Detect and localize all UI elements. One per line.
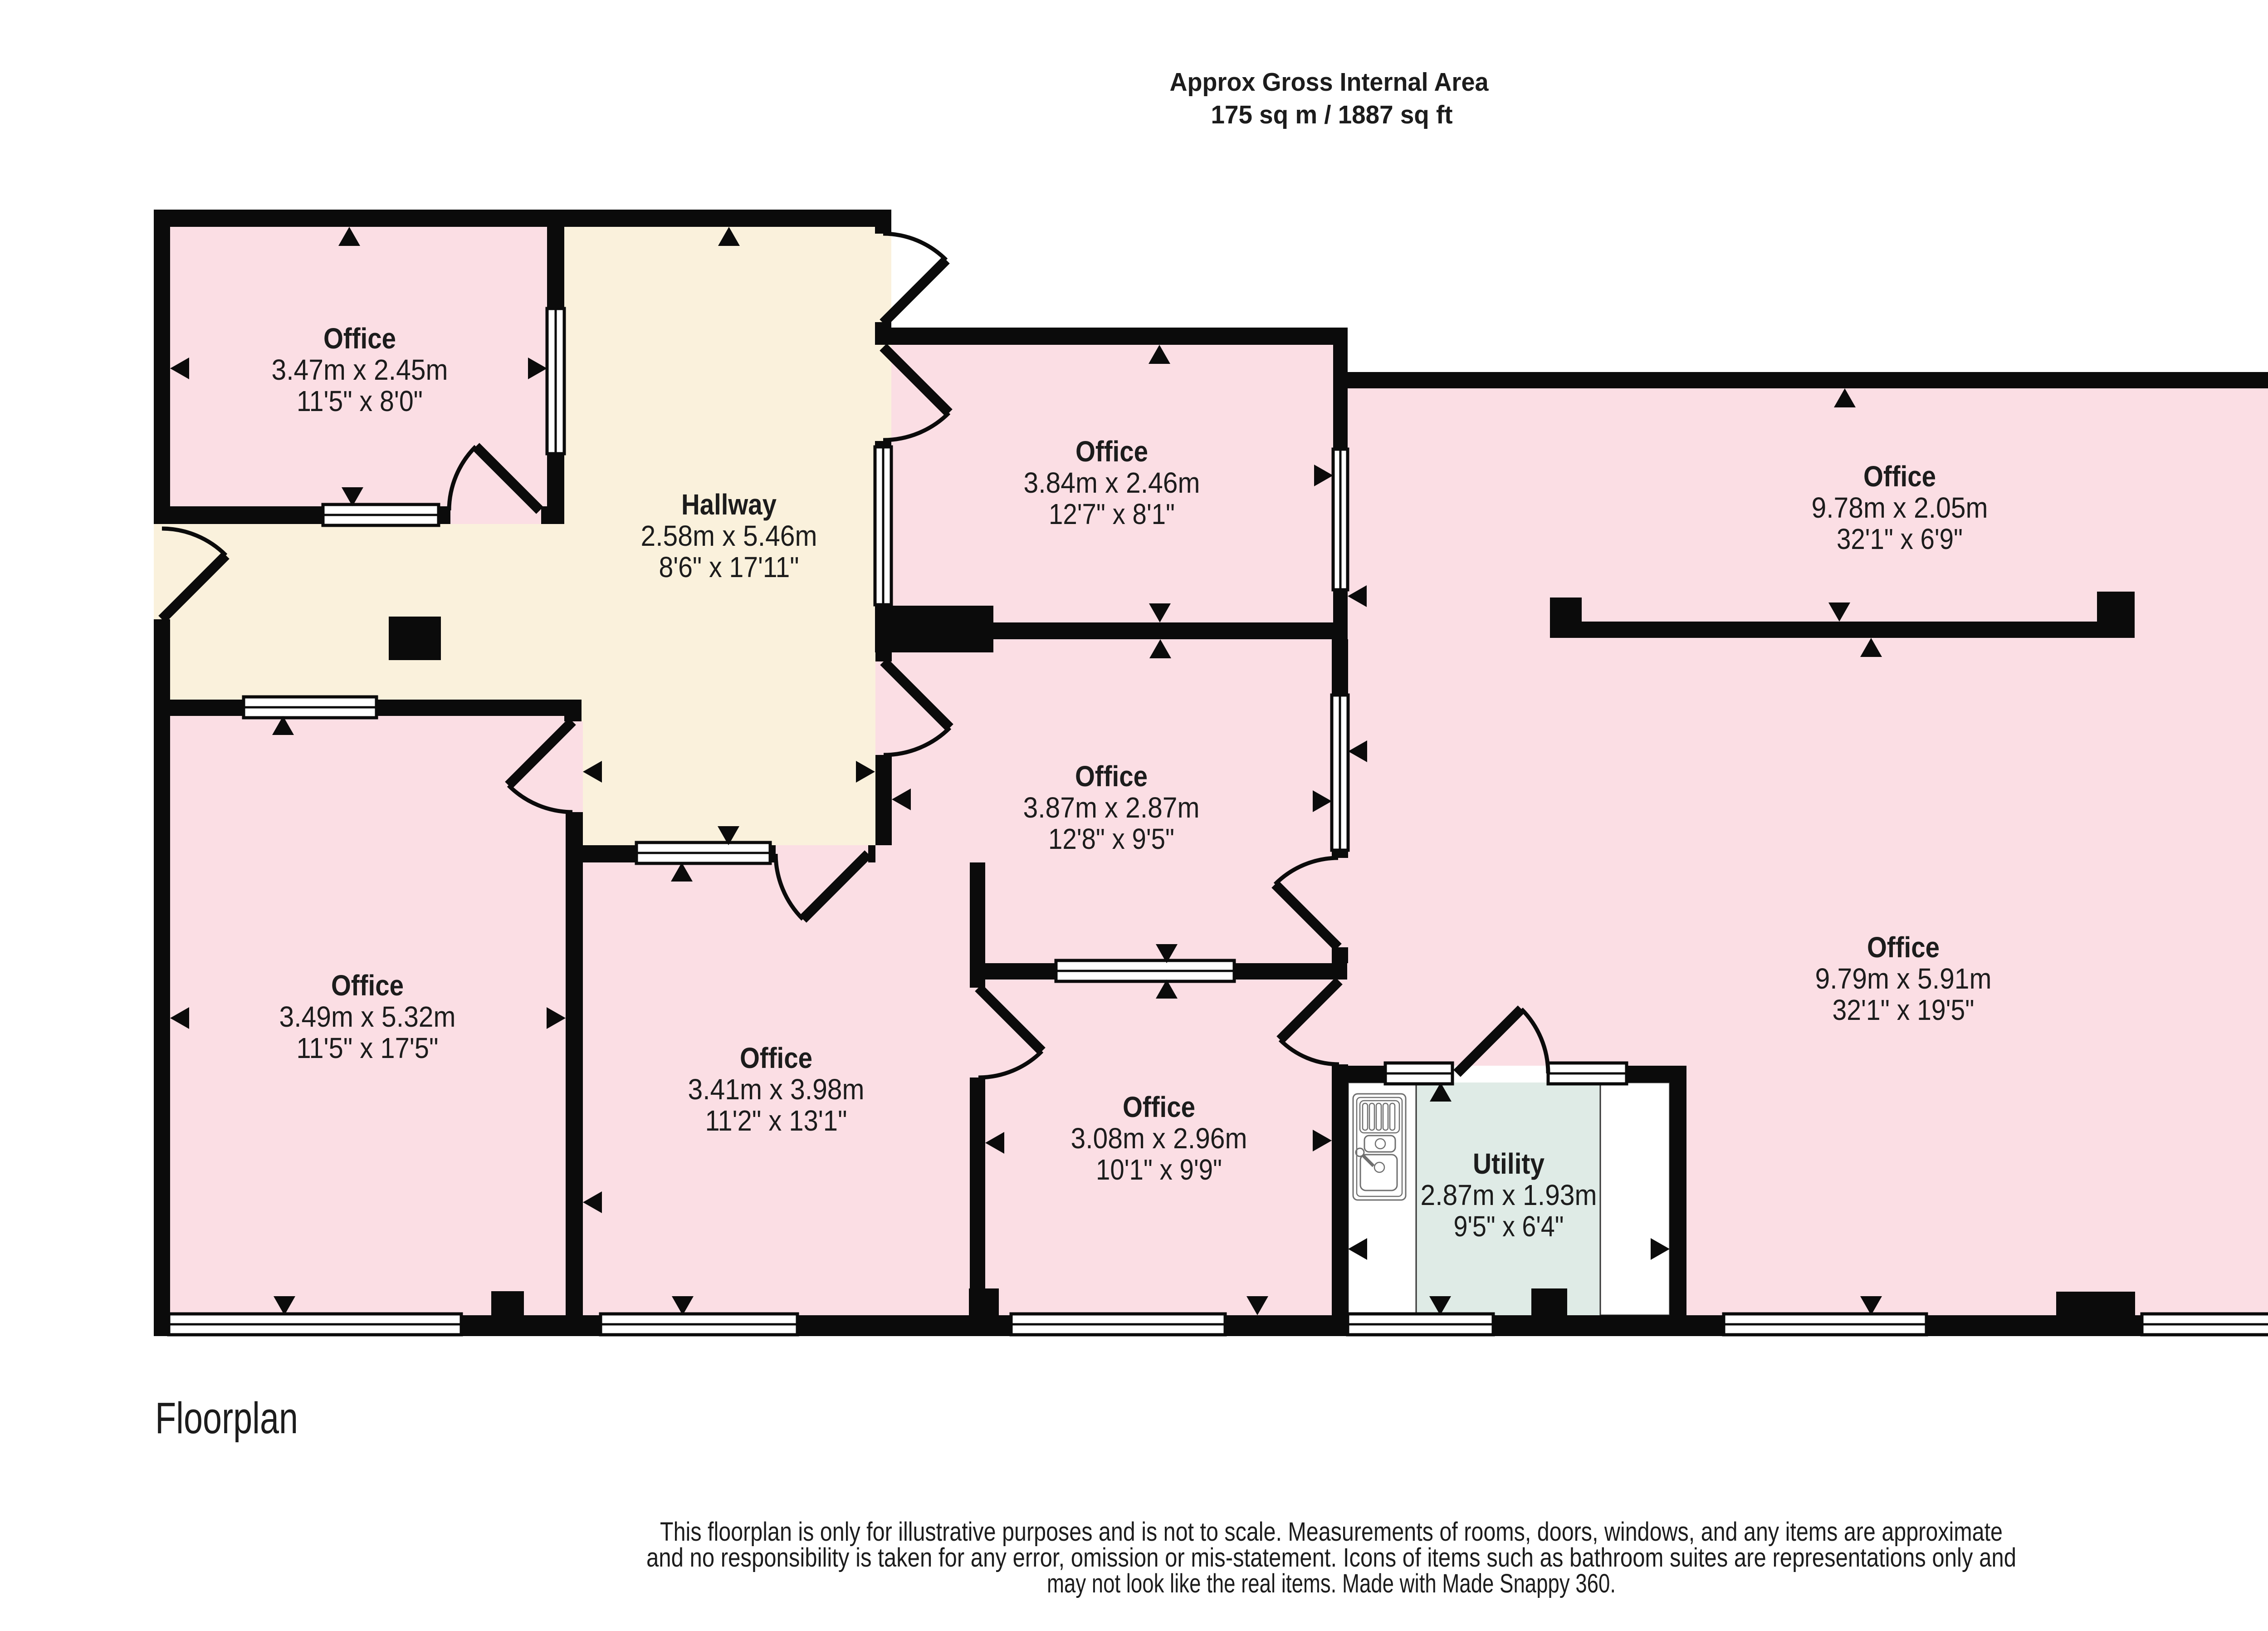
svg-text:11'5" x 17'5": 11'5" x 17'5"	[297, 1032, 439, 1064]
svg-text:and no responsibility is taken: and no responsibility is taken for any e…	[646, 1543, 2016, 1572]
svg-text:12'8" x 9'5": 12'8" x 9'5"	[1048, 823, 1174, 855]
svg-text:8'6" x 17'11": 8'6" x 17'11"	[659, 551, 799, 583]
svg-text:Office: Office	[1075, 435, 1148, 468]
svg-text:Utility: Utility	[1473, 1147, 1545, 1180]
svg-text:32'1" x 6'9": 32'1" x 6'9"	[1837, 523, 1963, 555]
svg-text:11'5" x 8'0": 11'5" x 8'0"	[297, 385, 423, 417]
svg-text:3.08m x 2.96m: 3.08m x 2.96m	[1071, 1122, 1247, 1155]
svg-text:Office: Office	[331, 969, 404, 1002]
svg-text:2.87m x 1.93m: 2.87m x 1.93m	[1421, 1179, 1597, 1211]
svg-text:3.87m x 2.87m: 3.87m x 2.87m	[1023, 791, 1200, 824]
svg-text:Office: Office	[1123, 1091, 1195, 1123]
svg-text:9'5" x 6'4": 9'5" x 6'4"	[1454, 1210, 1564, 1243]
svg-text:Office: Office	[1075, 760, 1148, 793]
svg-text:Approx Gross Internal Area: Approx Gross Internal Area	[1170, 68, 1489, 97]
svg-text:may not look like the real ite: may not look like the real items. Made w…	[1047, 1569, 1616, 1598]
svg-text:Office: Office	[1867, 931, 1940, 964]
svg-text:Hallway: Hallway	[681, 488, 777, 521]
svg-text:3.47m x 2.45m: 3.47m x 2.45m	[272, 353, 448, 386]
svg-text:3.49m x 5.32m: 3.49m x 5.32m	[279, 1000, 456, 1033]
svg-text:3.41m x 3.98m: 3.41m x 3.98m	[688, 1073, 865, 1106]
svg-text:32'1" x 19'5": 32'1" x 19'5"	[1833, 994, 1975, 1026]
svg-text:11'2" x 13'1": 11'2" x 13'1"	[705, 1104, 847, 1137]
svg-text:Office: Office	[323, 322, 396, 355]
svg-text:10'1" x 9'9": 10'1" x 9'9"	[1096, 1153, 1222, 1186]
svg-text:2.58m x 5.46m: 2.58m x 5.46m	[641, 519, 817, 552]
svg-text:9.78m x 2.05m: 9.78m x 2.05m	[1812, 491, 1988, 524]
svg-text:12'7" x 8'1": 12'7" x 8'1"	[1049, 498, 1175, 530]
svg-text:Floorplan: Floorplan	[155, 1393, 298, 1443]
svg-text:9.79m x 5.91m: 9.79m x 5.91m	[1815, 962, 1992, 995]
svg-text:3.84m x 2.46m: 3.84m x 2.46m	[1024, 466, 1200, 499]
svg-text:This floorplan is only for ill: This floorplan is only for illustrative …	[660, 1517, 2003, 1547]
svg-text:Office: Office	[1863, 460, 1936, 493]
svg-text:Office: Office	[740, 1042, 812, 1074]
svg-text:175 sq m / 1887 sq ft: 175 sq m / 1887 sq ft	[1211, 100, 1453, 129]
